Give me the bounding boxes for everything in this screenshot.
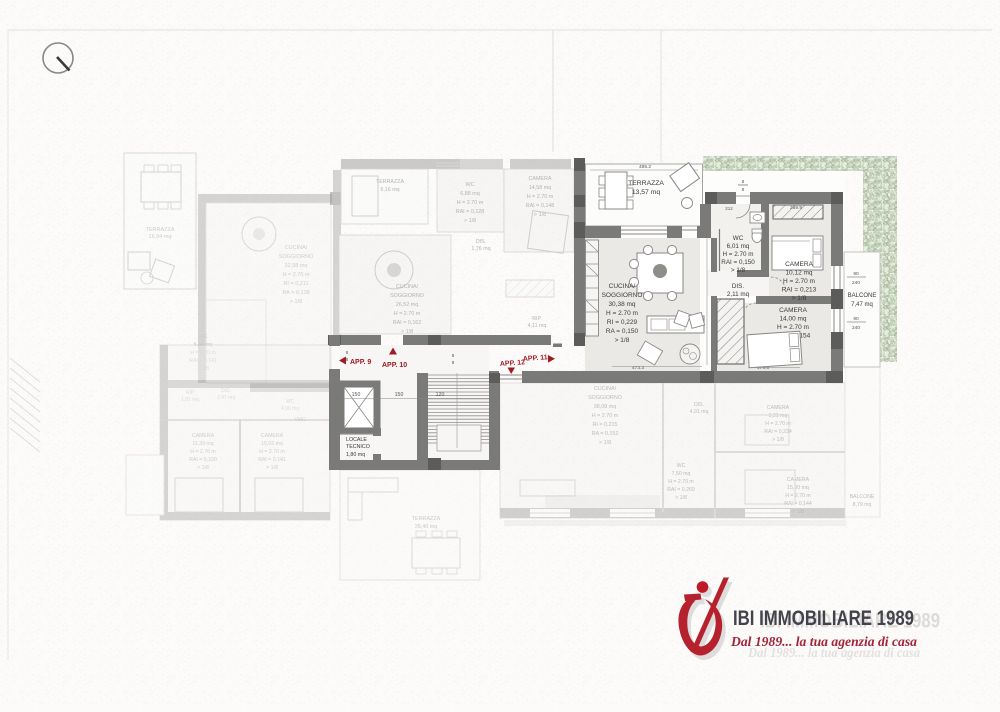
svg-text:> 1/8: > 1/8	[615, 337, 630, 344]
svg-text:WC: WC	[199, 334, 208, 340]
svg-text:7,47 mq: 7,47 mq	[851, 302, 873, 308]
svg-text:11,39 mq: 11,39 mq	[192, 441, 213, 447]
svg-text:RIP.: RIP.	[532, 316, 542, 322]
svg-text:150: 150	[395, 392, 404, 398]
svg-text:> 1/8: > 1/8	[731, 267, 746, 274]
svg-text:> 1/8: > 1/8	[792, 295, 807, 302]
svg-text:8: 8	[742, 179, 745, 185]
svg-text:269.9: 269.9	[790, 205, 802, 211]
svg-text:16,94 mq: 16,94 mq	[149, 234, 172, 240]
svg-text:RAI = 0,128: RAI = 0,128	[456, 209, 485, 215]
svg-text:28,40 mq: 28,40 mq	[415, 524, 437, 530]
svg-text:9,16 mq: 9,16 mq	[380, 187, 399, 193]
svg-text:WC: WC	[466, 182, 475, 188]
svg-text:90: 90	[853, 271, 859, 277]
svg-text:> 1/8: > 1/8	[772, 437, 784, 443]
svg-text:DIS.: DIS.	[732, 283, 744, 290]
svg-text:H = 2.70 m: H = 2.70 m	[785, 493, 811, 499]
svg-text:CUCINA/: CUCINA/	[609, 283, 636, 290]
svg-text:CAMERA: CAMERA	[528, 176, 551, 182]
svg-text:90: 90	[853, 316, 859, 322]
svg-text:CUCINA/: CUCINA/	[396, 284, 419, 290]
svg-text:BALCONE: BALCONE	[848, 293, 877, 299]
svg-text:RAI = 0,213: RAI = 0,213	[782, 287, 817, 294]
svg-text:LOCALE: LOCALE	[346, 437, 367, 443]
svg-text:240: 240	[852, 280, 860, 286]
svg-text:CAMERA: CAMERA	[787, 477, 810, 483]
svg-text:120: 120	[436, 392, 445, 398]
svg-text:SOGGIORNO: SOGGIORNO	[588, 395, 622, 401]
svg-text:> 1/8: > 1/8	[266, 465, 278, 471]
svg-text:DIS.: DIS.	[476, 239, 486, 245]
svg-text:4,91 mq: 4,91 mq	[690, 409, 709, 415]
svg-text:RI = 0,211: RI = 0,211	[283, 281, 308, 287]
svg-text:32,98 mq: 32,98 mq	[285, 263, 308, 269]
svg-text:H = 2.70 m: H = 2.70 m	[394, 311, 421, 317]
svg-text:WC: WC	[677, 463, 686, 469]
svg-text:7,50 mq: 7,50 mq	[672, 471, 691, 477]
svg-text:8: 8	[742, 187, 745, 193]
svg-text:RAI = 0,148: RAI = 0,148	[526, 203, 555, 209]
svg-text:2,11 mq: 2,11 mq	[727, 291, 750, 298]
svg-text:6,01 mq: 6,01 mq	[727, 243, 750, 250]
svg-text:H = 2.70 m: H = 2.70 m	[259, 449, 285, 455]
svg-text:10,12 mq: 10,12 mq	[785, 270, 812, 277]
svg-text:4,11 mq: 4,11 mq	[528, 323, 547, 329]
svg-text:30,38 mq: 30,38 mq	[608, 301, 635, 308]
svg-text:26,52 mq: 26,52 mq	[396, 302, 418, 308]
svg-text:RI = 0,215: RI = 0,215	[592, 422, 617, 428]
svg-text:1,76 mq: 1,76 mq	[471, 246, 490, 252]
svg-text:CAMERA: CAMERA	[192, 433, 215, 439]
svg-text:485.2: 485.2	[639, 164, 651, 170]
svg-text:SOGGIORNO: SOGGIORNO	[279, 254, 314, 260]
svg-text:9,21 mq: 9,21 mq	[769, 413, 788, 419]
svg-text:240: 240	[852, 325, 860, 331]
svg-text:> 1/8: > 1/8	[464, 218, 476, 224]
svg-text:H = 2.70 m: H = 2.70 m	[282, 272, 309, 278]
svg-text:> 1/8: > 1/8	[675, 495, 687, 501]
svg-text:H = 2.70 m: H = 2.70 m	[527, 194, 554, 200]
svg-text:RA = 0,152: RA = 0,152	[592, 431, 619, 437]
svg-text:RA = 0,138: RA = 0,138	[282, 290, 309, 296]
svg-text:CUCINA/: CUCINA/	[594, 386, 617, 392]
svg-text:14,00 mq: 14,00 mq	[779, 316, 806, 323]
svg-text:212: 212	[725, 206, 733, 211]
svg-text:H = 2.70 m: H = 2.70 m	[592, 413, 619, 419]
svg-text:SOGGIORNO: SOGGIORNO	[602, 292, 643, 299]
svg-text:RAI = 0,234: RAI = 0,234	[764, 429, 792, 435]
svg-text:H = 2.70 m: H = 2.70 m	[190, 449, 216, 455]
svg-text:15,00 mq: 15,00 mq	[787, 485, 809, 491]
svg-text:> 1/8: > 1/8	[197, 465, 209, 471]
svg-text:8,79 mq: 8,79 mq	[853, 502, 872, 508]
svg-text:38,08 mq: 38,08 mq	[594, 404, 616, 410]
svg-text:6,88 mq: 6,88 mq	[460, 191, 479, 197]
svg-text:CUCINA/: CUCINA/	[285, 245, 308, 251]
svg-text:CAMERA: CAMERA	[261, 433, 284, 439]
svg-text:Dal 1989... la tua agenzia di: Dal 1989... la tua agenzia di casa	[730, 634, 917, 649]
svg-text:RAI = 0,150: RAI = 0,150	[721, 259, 755, 266]
svg-text:RAI = 0,269: RAI = 0,269	[667, 487, 695, 493]
svg-text:APP. 9: APP. 9	[350, 359, 371, 366]
svg-text:CAMERA: CAMERA	[779, 307, 807, 314]
svg-text:H = 2.70 m: H = 2.70 m	[606, 310, 638, 317]
svg-text:RAI = 0,141: RAI = 0,141	[258, 457, 286, 463]
svg-text:> 1/8: > 1/8	[792, 509, 804, 515]
svg-text:> 1/8: > 1/8	[534, 212, 546, 218]
svg-text:H = 2.70 m: H = 2.70 m	[457, 200, 484, 206]
svg-text:473.3: 473.3	[632, 365, 644, 371]
svg-text:RA = 0,150: RA = 0,150	[606, 328, 639, 335]
svg-text:H = 2.70 m: H = 2.70 m	[668, 479, 694, 485]
svg-text:H = 2.70 m: H = 2.70 m	[777, 324, 809, 331]
svg-text:SOGGIORNO: SOGGIORNO	[390, 293, 424, 299]
svg-text:RI = 0,229: RI = 0,229	[607, 319, 638, 326]
svg-text:H = 2.70 m: H = 2.70 m	[783, 278, 815, 285]
svg-text:H = 2.70 m: H = 2.70 m	[765, 421, 791, 427]
svg-text:DIS.: DIS.	[694, 402, 704, 408]
svg-text:RAI = 0,162: RAI = 0,162	[393, 320, 422, 326]
svg-text:BALCONE: BALCONE	[850, 494, 875, 500]
svg-text:TERRAZZA: TERRAZZA	[376, 179, 404, 185]
svg-text:TERRAZZA: TERRAZZA	[145, 227, 174, 233]
svg-text:TERRAZZA: TERRAZZA	[628, 180, 664, 187]
svg-text:13,57 mq: 13,57 mq	[632, 189, 661, 196]
svg-text:H = 2.70 m: H = 2.70 m	[723, 251, 754, 258]
svg-text:CAMERA: CAMERA	[767, 405, 790, 411]
svg-text:> 1/8: > 1/8	[599, 440, 611, 446]
svg-text:WC: WC	[733, 235, 744, 242]
svg-text:IBI IMMOBILIARE 1989: IBI IMMOBILIARE 1989	[733, 606, 914, 630]
svg-text:14,58 mq: 14,58 mq	[529, 185, 551, 191]
svg-text:TECNICO: TECNICO	[346, 444, 370, 450]
svg-text:1,80 mq: 1,80 mq	[346, 452, 365, 458]
svg-text:> 1/8: > 1/8	[401, 329, 413, 335]
svg-text:CAMERA: CAMERA	[785, 261, 813, 268]
svg-text:APP. 10: APP. 10	[382, 362, 407, 369]
svg-text:TERRAZZA: TERRAZZA	[412, 516, 441, 522]
svg-text:150: 150	[352, 392, 361, 398]
svg-text:RAI = 0,190: RAI = 0,190	[189, 457, 217, 463]
svg-text:> 1/8: > 1/8	[290, 299, 302, 305]
svg-text:15,02 mq: 15,02 mq	[261, 441, 283, 447]
